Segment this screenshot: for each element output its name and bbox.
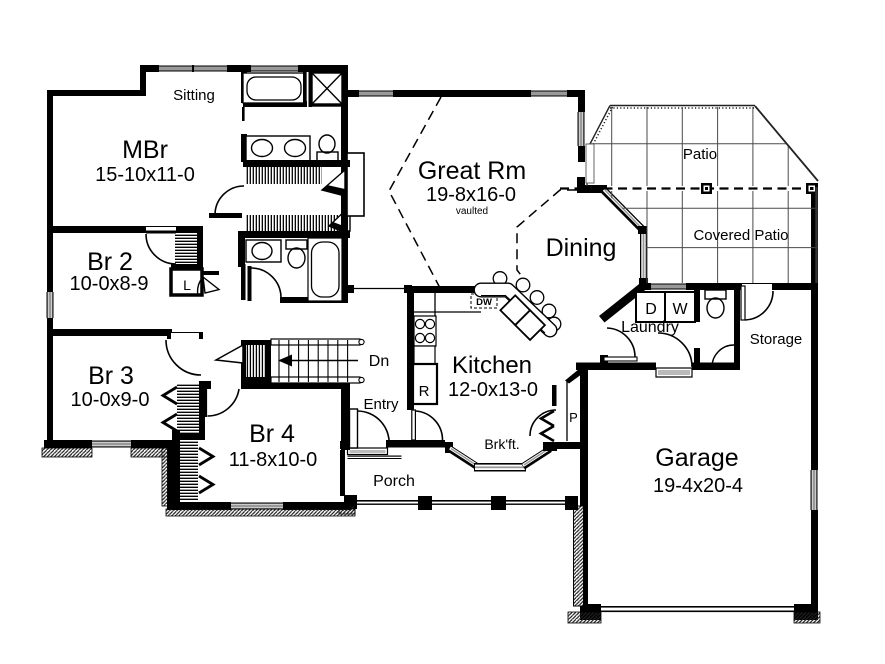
- svg-text:W: W: [672, 301, 688, 318]
- svg-text:Brk'ft.: Brk'ft.: [484, 436, 519, 452]
- svg-text:Br 3: Br 3: [88, 362, 134, 390]
- svg-text:19-8x16-0: 19-8x16-0: [426, 184, 516, 206]
- svg-text:Entry: Entry: [363, 396, 399, 413]
- svg-text:11-8x10-0: 11-8x10-0: [229, 449, 318, 471]
- svg-text:P: P: [569, 410, 578, 425]
- svg-text:Kitchen: Kitchen: [452, 352, 532, 379]
- svg-text:Dining: Dining: [546, 234, 617, 262]
- svg-text:Great Rm: Great Rm: [418, 157, 526, 185]
- svg-text:Garage: Garage: [655, 444, 738, 472]
- svg-text:19-4x20-4: 19-4x20-4: [653, 475, 743, 497]
- svg-text:Patio: Patio: [683, 146, 717, 163]
- svg-text:Br 4: Br 4: [249, 420, 295, 448]
- svg-text:MBr: MBr: [122, 136, 168, 164]
- svg-text:Storage: Storage: [750, 331, 803, 348]
- svg-text:Laundry: Laundry: [621, 319, 679, 336]
- svg-text:Covered Patio: Covered Patio: [693, 227, 788, 244]
- svg-text:10-0x8-9: 10-0x8-9: [70, 273, 149, 295]
- svg-text:Sitting: Sitting: [173, 87, 215, 104]
- svg-text:10-0x9-0: 10-0x9-0: [71, 389, 150, 411]
- svg-text:D: D: [645, 301, 657, 318]
- svg-text:DW: DW: [476, 297, 492, 308]
- svg-text:12-0x13-0: 12-0x13-0: [448, 379, 538, 401]
- svg-text:R: R: [419, 383, 430, 400]
- svg-text:Porch: Porch: [373, 473, 415, 490]
- svg-text:Br 2: Br 2: [87, 248, 133, 276]
- svg-text:L: L: [183, 277, 191, 293]
- svg-text:Dn: Dn: [369, 353, 389, 370]
- svg-text:15-10x11-0: 15-10x11-0: [95, 164, 195, 186]
- svg-text:vaulted: vaulted: [456, 206, 488, 217]
